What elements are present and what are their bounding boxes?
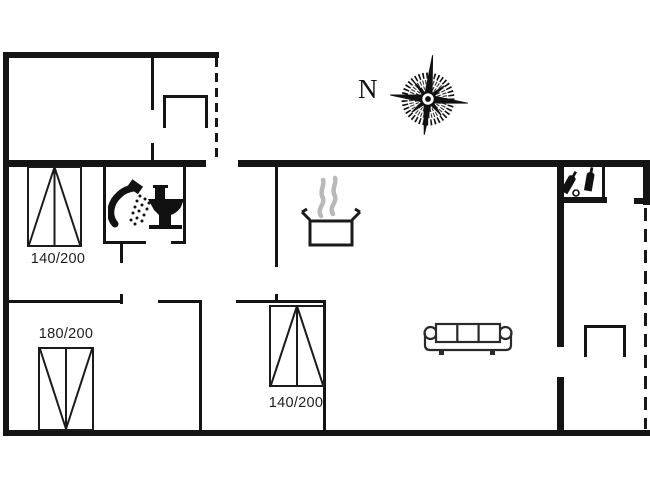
bed-size-label: 140/200 <box>263 395 329 411</box>
wall-segment <box>557 377 564 430</box>
steps-edge <box>163 95 166 128</box>
double-bed-bottom-middle <box>269 305 325 387</box>
wall-segment <box>3 52 219 58</box>
steps-edge <box>584 325 626 328</box>
wine-bottles-icon <box>562 166 604 200</box>
cooking-pot-icon <box>300 175 362 247</box>
entrance-opening-dashed-line <box>215 58 218 161</box>
wall-segment <box>6 300 122 303</box>
steps-edge <box>205 95 208 128</box>
steps-edge <box>623 325 626 357</box>
wall-segment <box>236 300 326 303</box>
wall-segment <box>199 300 202 430</box>
bed-size-label: 140/200 <box>25 251 91 267</box>
steam-icon <box>320 178 336 216</box>
floor-plan: N <box>0 0 650 487</box>
wall-segment <box>275 294 278 303</box>
wall-segment <box>120 244 123 263</box>
wall-segment <box>275 165 278 267</box>
wall-segment <box>103 167 106 244</box>
wall-segment <box>103 241 146 244</box>
wall-segment <box>634 198 650 204</box>
wall-segment <box>158 300 202 303</box>
north-label: N <box>358 74 378 105</box>
toilet-icon <box>148 185 188 231</box>
double-bed-bottom-left <box>38 347 94 431</box>
wall-segment <box>171 241 186 244</box>
wall-segment <box>151 143 154 163</box>
terrace-boundary-dashed-line <box>644 208 647 429</box>
steps-edge <box>584 325 587 357</box>
double-bed-top-left <box>27 166 82 247</box>
wall-segment <box>151 58 154 110</box>
steps-edge <box>163 95 208 98</box>
bed-size-label: 180/200 <box>33 326 99 342</box>
compass-rose-icon <box>386 53 472 145</box>
wall-segment <box>3 52 9 436</box>
sofa-icon <box>423 322 513 360</box>
wall-segment <box>3 430 650 436</box>
